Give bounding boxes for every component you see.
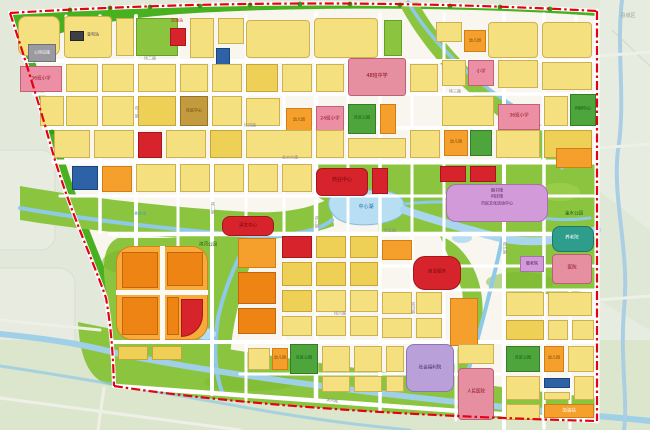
map-label: 经三路: [314, 216, 319, 228]
map-label: 纬三路: [449, 90, 461, 95]
map-label: 变电站: [87, 33, 99, 38]
map-label: 科研中心: [575, 107, 591, 112]
map-label: 36班小学: [509, 113, 528, 118]
map-label: 中心湖: [358, 205, 373, 211]
map-label: 幼儿园: [548, 356, 560, 361]
map-label: 社区中心: [186, 109, 202, 114]
map-label: 24班小学: [320, 116, 339, 121]
map-label: 小学: [477, 69, 486, 74]
map-label: 48班中学: [366, 74, 387, 80]
map-label: 市民文化活动中心: [481, 202, 513, 207]
map-label: 滨河公园: [199, 242, 217, 247]
map-label: 商业中心: [332, 178, 352, 184]
map-label: 幼儿园: [293, 118, 305, 123]
labels-layer: 加油站变电站公用设施36班小学小学幼儿园48班中学社区中心幼儿园24班小学社区公…: [0, 0, 650, 430]
map-label: 社区公园: [296, 356, 312, 361]
map-label: 科技馆: [491, 195, 503, 200]
map-label: 金水河: [134, 211, 146, 216]
map-label: 幼儿园: [450, 140, 462, 145]
map-label: 36班小学: [31, 76, 50, 81]
map-label: 商业服务: [428, 269, 446, 274]
planning-map[interactable]: 加油站变电站公用设施36班小学小学幼儿园48班中学社区中心幼儿园24班小学社区公…: [0, 0, 650, 430]
map-label: 敬老院: [526, 262, 538, 267]
map-label: 社区公园: [515, 356, 531, 361]
map-label: 纬四路: [244, 124, 256, 129]
map-label: 经四路: [410, 302, 415, 314]
map-label: 社区公园: [354, 116, 370, 121]
map-label: 经一路: [134, 106, 139, 118]
map-label: 滨河路: [326, 398, 338, 404]
map-label: 加油站: [562, 408, 576, 413]
map-label: 金水公园: [565, 211, 583, 216]
map-label: 演艺中心: [239, 223, 257, 228]
map-label: 养老院: [565, 235, 579, 240]
map-label: 纬六路: [334, 312, 346, 317]
map-label: 公用设施: [34, 51, 50, 56]
map-label: 幼儿园: [274, 356, 286, 361]
map-label: 经二路: [210, 202, 215, 214]
map-label: 纬二路: [144, 57, 156, 62]
map-label: 幼儿园: [469, 39, 481, 44]
map-label: 经五路: [502, 242, 507, 254]
map-label: 社会福利院: [419, 365, 442, 370]
map-label: 加油站: [171, 19, 183, 24]
map-label: 图书馆: [491, 189, 503, 194]
map-label: 医院: [568, 265, 577, 270]
map-label: 人民医院: [467, 389, 485, 394]
map-label: 纬五路: [384, 229, 396, 234]
map-label: 金水大道: [282, 156, 298, 161]
map-label: 县城区: [620, 14, 635, 20]
